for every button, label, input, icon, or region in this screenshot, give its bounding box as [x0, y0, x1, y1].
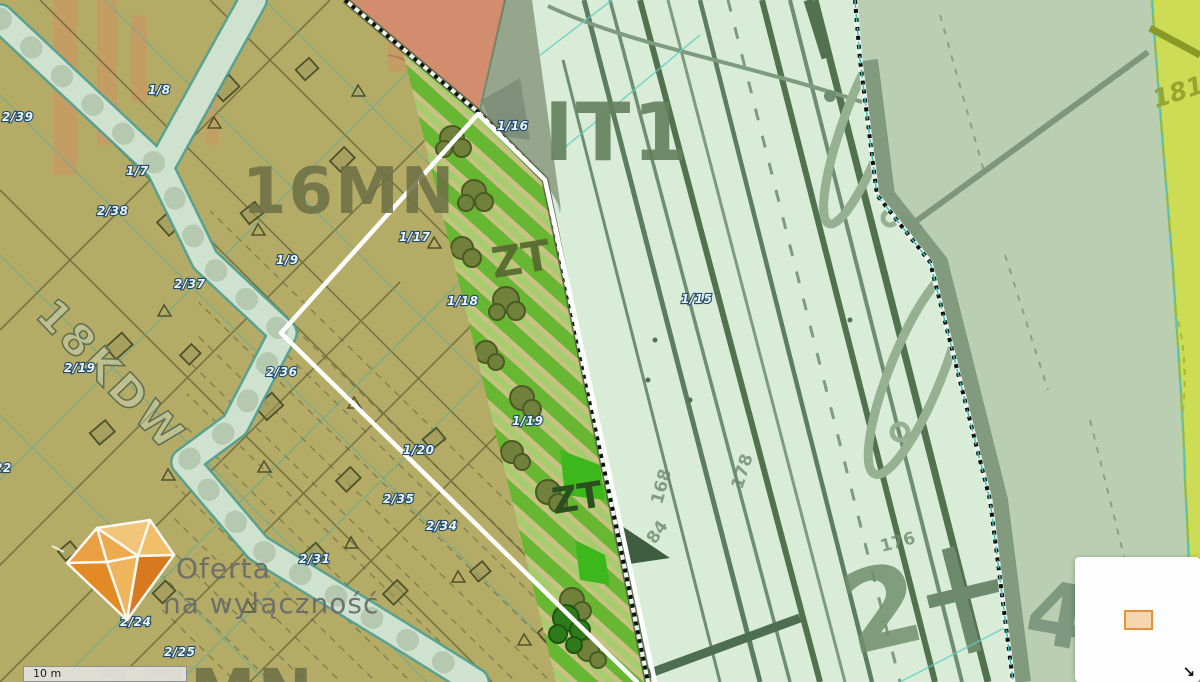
parcel-label: 1/18	[447, 294, 478, 308]
watermark-line1: Oferta	[176, 552, 271, 585]
parcel-label: 2/36	[266, 365, 297, 379]
watermark-line2: na wyłączność	[163, 587, 379, 620]
parcel-label: 2/38	[97, 204, 128, 218]
zone-label-zt-lower: ZT	[549, 474, 606, 522]
parcel-label: 1/15	[681, 292, 712, 306]
resize-handle-icon[interactable]: ↘	[1182, 663, 1195, 681]
parcel-label: 1/7	[126, 164, 149, 178]
parcel-label: 2/39	[2, 110, 33, 124]
scale-bar: 10 m	[23, 666, 187, 682]
parcel-label: 2/31	[299, 552, 330, 566]
parcel-label: 1/20	[403, 443, 434, 457]
parcel-label: 2/34	[426, 519, 457, 533]
parcel-label: 1/8	[148, 83, 171, 97]
zone-label-zt-upper: ZT	[488, 230, 554, 288]
parcel-label: 1/9	[276, 253, 299, 267]
map-viewport[interactable]: 18KDW	[0, 0, 1200, 682]
minimap-overview[interactable]: ↘	[1075, 557, 1200, 682]
parcel-label: 1/16	[497, 119, 528, 133]
scale-bar-label: 10 m	[33, 667, 61, 680]
zone-label-16mn: 16MN	[242, 155, 456, 229]
parcel-label: 2/19	[64, 361, 95, 375]
parcel-label: 22	[0, 461, 12, 475]
minimap-viewport-marker	[1124, 610, 1153, 630]
zone-label-it1: IT1	[544, 86, 690, 179]
parcel-label: 1/19	[512, 414, 543, 428]
parcel-label: 2/25	[164, 645, 195, 659]
map-canvas: 18KDW	[0, 0, 1200, 682]
parcel-label: 2/35	[383, 492, 414, 506]
parcel-label: 2/37	[174, 277, 206, 291]
parcel-label: 1/17	[399, 230, 431, 244]
